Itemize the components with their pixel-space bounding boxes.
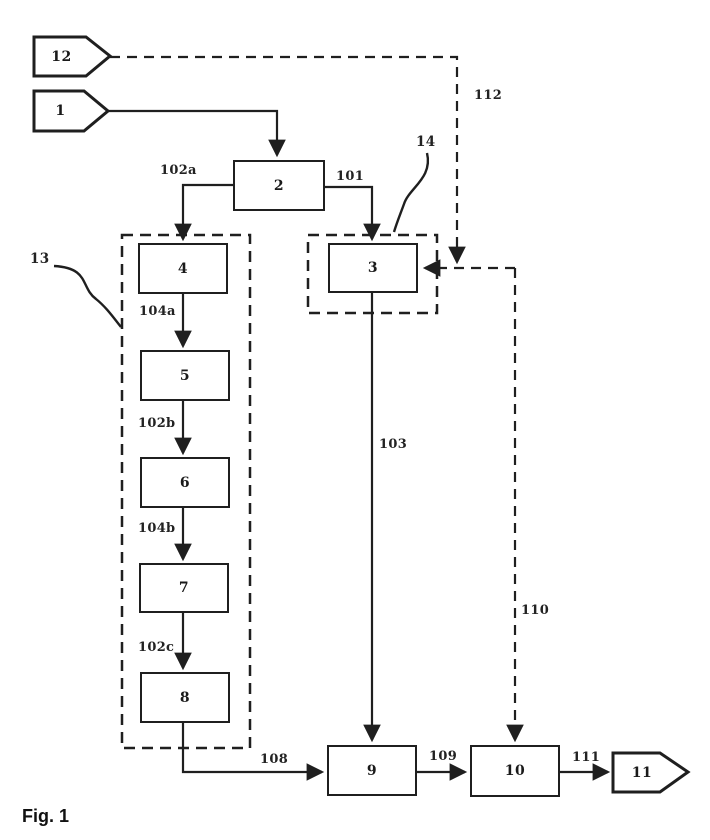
edge-102a-line: [183, 185, 233, 239]
node-box-8: 8: [140, 672, 230, 723]
edge-label-102b: 102b: [138, 416, 175, 431]
edge-label-101: 101: [336, 169, 364, 184]
node-box-5: 5: [140, 350, 230, 401]
edge-label-103: 103: [379, 437, 407, 452]
edge-label-110: 110: [521, 603, 549, 618]
edge-label-104a: 104a: [139, 304, 176, 319]
edge-label-102c: 102c: [138, 640, 174, 655]
edge-label-112: 112: [474, 88, 502, 103]
edge-101-line: [325, 187, 372, 239]
node-box-9: 9: [327, 745, 417, 796]
tag-1-label: 1: [34, 91, 87, 131]
edge-1-to-2-line: [108, 111, 277, 155]
edge-label-109: 109: [429, 749, 457, 764]
tag-12-label: 12: [34, 37, 89, 76]
group-13-label: 13: [30, 251, 49, 267]
edge-label-102a: 102a: [160, 163, 197, 178]
connector-lines-layer: [0, 0, 710, 840]
edge-label-108: 108: [260, 752, 288, 767]
tag-11-label: 11: [613, 753, 671, 792]
group-14-label: 14: [416, 134, 435, 150]
edge-label-111: 111: [572, 750, 600, 765]
leader-13-squiggle: [54, 266, 121, 327]
patent-figure-diagram: 2 3 4 5 6 7 8 9 10 12 1 11 13 14 112 102…: [0, 0, 710, 840]
edge-label-104b: 104b: [138, 521, 175, 536]
leader-14-squiggle: [394, 153, 428, 232]
node-box-6: 6: [140, 457, 230, 508]
node-box-4: 4: [138, 243, 228, 294]
node-box-3: 3: [328, 243, 418, 293]
node-box-2: 2: [233, 160, 325, 211]
node-box-7: 7: [139, 563, 229, 613]
node-box-10: 10: [470, 745, 560, 797]
figure-caption: Fig. 1: [22, 806, 69, 827]
